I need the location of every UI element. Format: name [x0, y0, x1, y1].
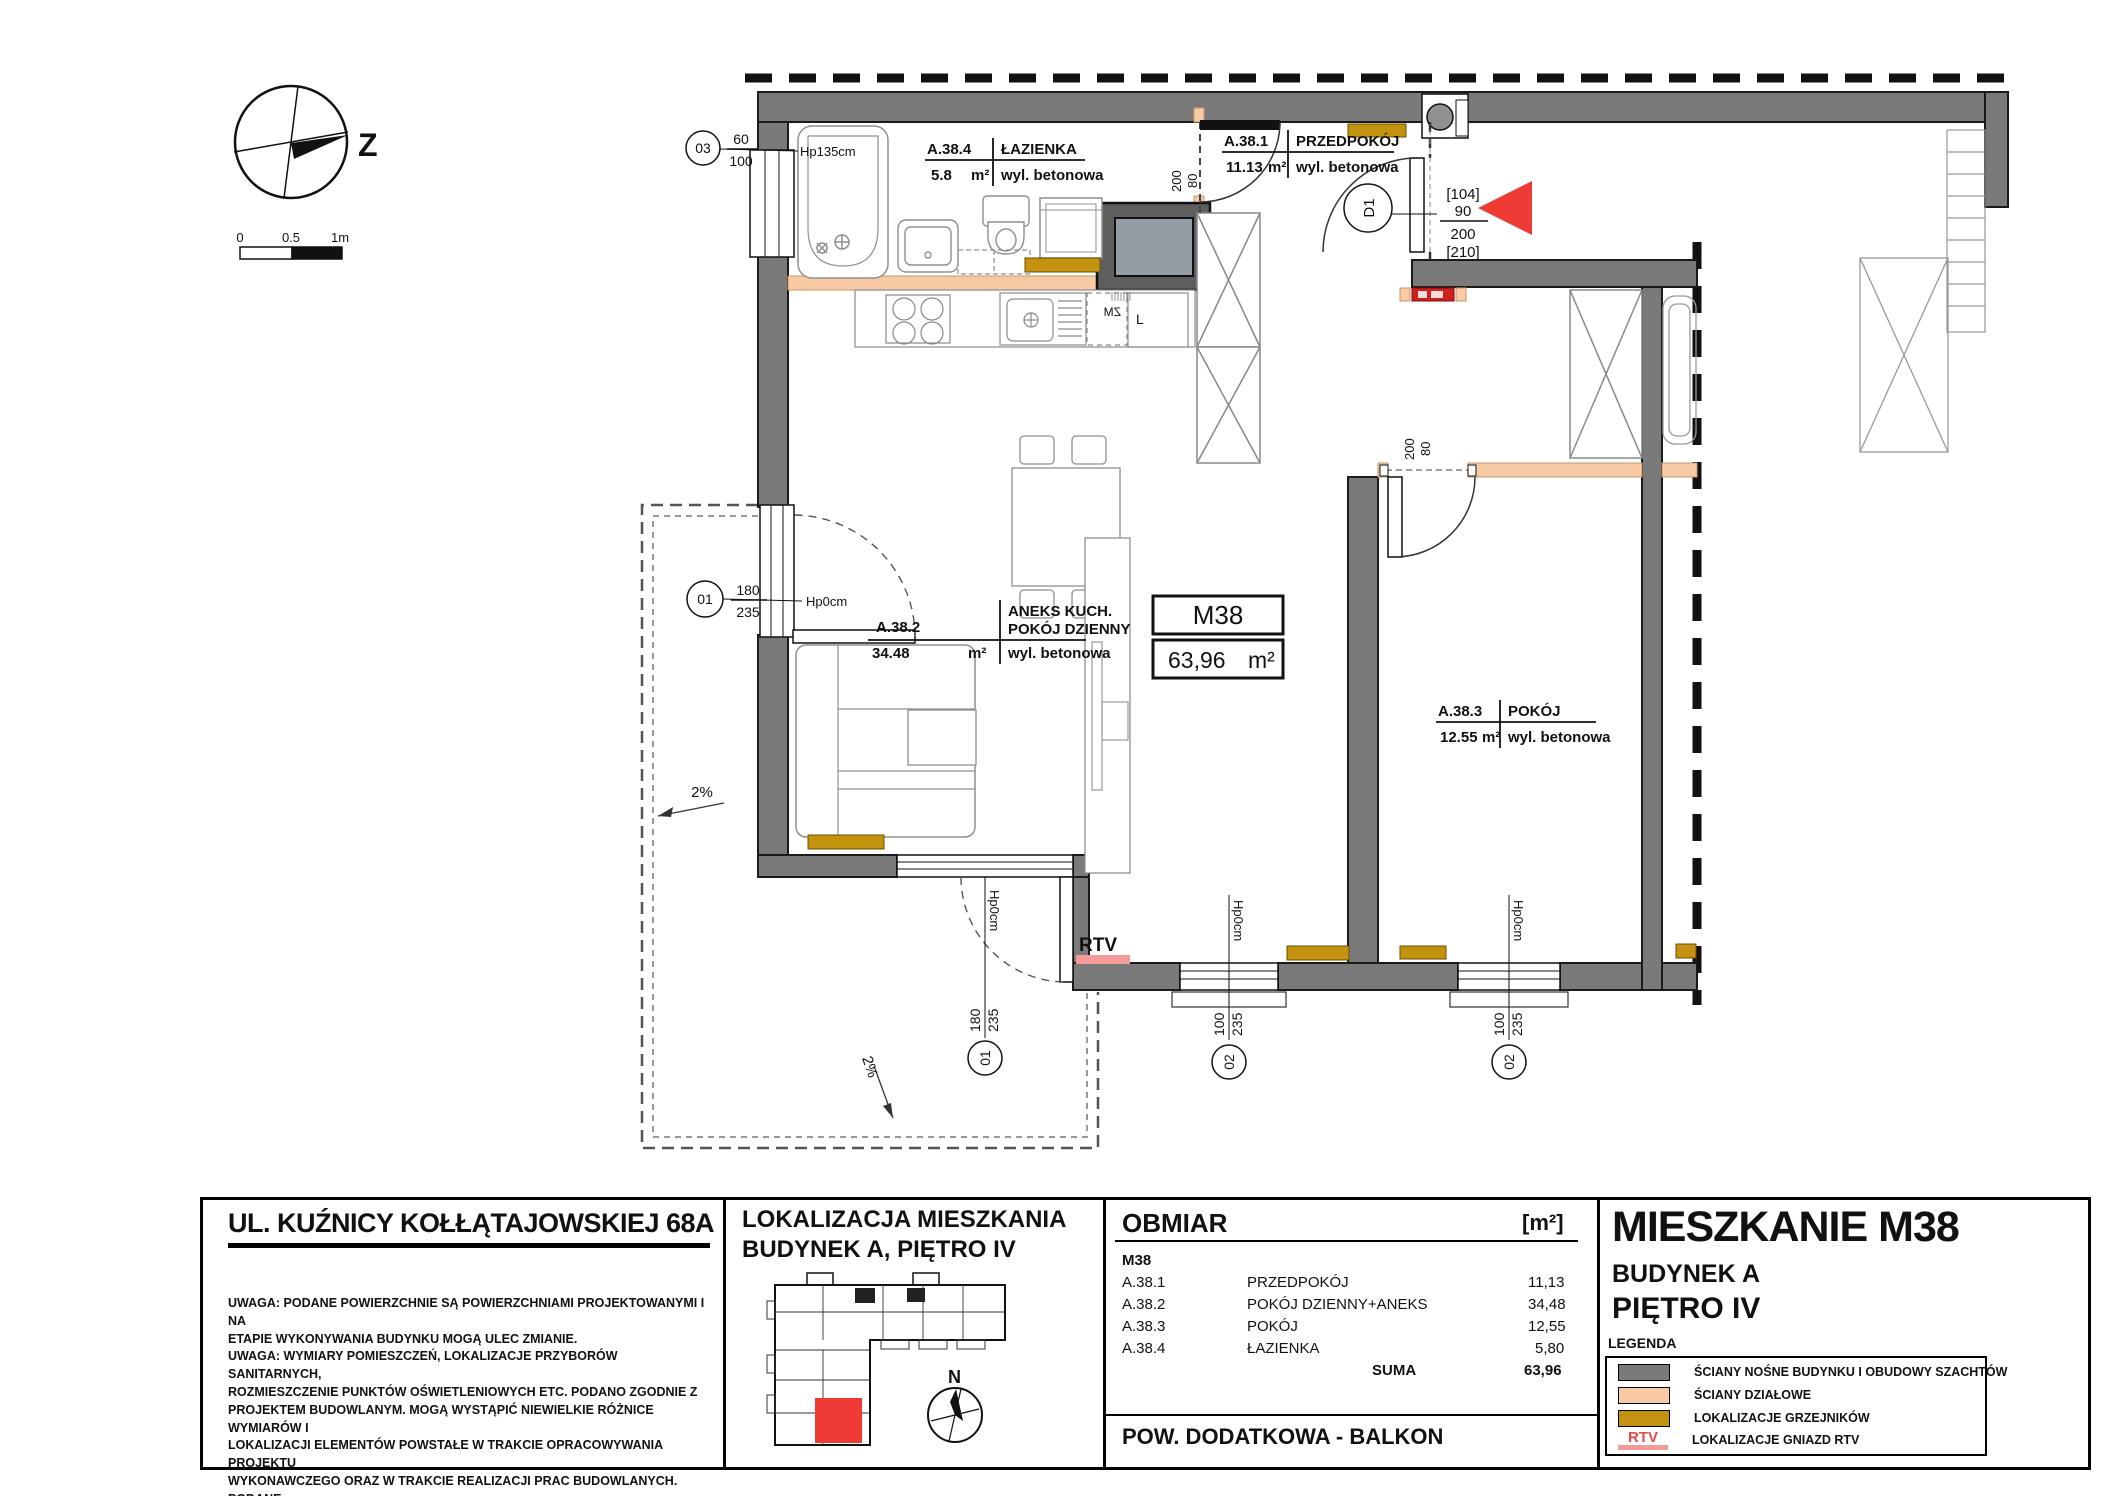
svg-text:m²: m²	[1482, 729, 1500, 746]
neighbor-shaft-icon	[1860, 258, 1948, 452]
svg-text:235: 235	[985, 1008, 1001, 1032]
svg-text:200: 200	[1169, 170, 1184, 192]
obmiar-bottom-line	[1103, 1414, 1597, 1416]
svg-text:ŁAZIENKA: ŁAZIENKA	[1001, 141, 1077, 158]
highlighted-apartment	[815, 1398, 862, 1443]
building-label: BUDYNEK	[1612, 1260, 1736, 1289]
svg-text:m²: m²	[968, 645, 986, 662]
rtv-socket: RTV	[1076, 935, 1130, 964]
row-name: ŁAZIENKA	[1247, 1340, 1477, 1357]
svg-text:200: 200	[1402, 438, 1417, 460]
room-label-bedroom: A.38.3 POKÓJ 12.55 m² wyl. betonowa	[1436, 700, 1611, 748]
svg-text:POKÓJ: POKÓJ	[1508, 702, 1561, 720]
floor-plan: ZM L	[0, 0, 2116, 1192]
legend-swatch-radiator	[1618, 1410, 1670, 1427]
wardrobe-icon	[1570, 290, 1642, 458]
note-line: UWAGA: WYMIARY POMIESZCZEŃ, LOKALIZACJE …	[228, 1348, 708, 1384]
svg-text:01: 01	[977, 1050, 993, 1066]
north-label: Z	[358, 127, 378, 163]
row-code: A.38.4	[1122, 1340, 1247, 1357]
sink-icon	[1000, 293, 1086, 345]
svg-text:02: 02	[1221, 1054, 1237, 1070]
neighbor-bathtub-icon	[1663, 296, 1696, 444]
stair-core	[855, 1288, 875, 1303]
svg-text:2%: 2%	[691, 784, 713, 801]
legend-row-rtv: RTV LOKALIZACJE GNIAZD RTV	[1618, 1430, 1859, 1450]
svg-text:5.8: 5.8	[931, 167, 952, 184]
svg-text:1m: 1m	[331, 230, 349, 245]
vent-comb-icon	[1112, 292, 1130, 301]
compass-icon: Z	[234, 86, 378, 198]
svg-text:235: 235	[1229, 1012, 1245, 1036]
svg-text:80: 80	[1185, 174, 1200, 188]
minimap-compass-icon: N	[928, 1367, 982, 1442]
tv-unit-icon	[1085, 538, 1130, 873]
location-minimap: N	[723, 1255, 1103, 1465]
svg-text:90: 90	[1455, 203, 1472, 220]
row-area: 11,13	[1528, 1274, 1564, 1291]
legend-rtv-tag: RTV	[1618, 1430, 1668, 1450]
legend-swatch-partition	[1618, 1387, 1670, 1404]
svg-text:Hp0cm: Hp0cm	[1511, 900, 1526, 941]
svg-text:03: 03	[695, 140, 711, 156]
svg-text:wyl. betonowa: wyl. betonowa	[1295, 159, 1399, 176]
location-title-1: LOKALIZACJA MIESZKANIA	[742, 1206, 1066, 1234]
row-name: POKÓJ	[1247, 1318, 1477, 1335]
svg-text:A.38.2: A.38.2	[876, 619, 920, 636]
bath-dashed-cabinet-icon	[958, 250, 1030, 274]
svg-text:RTV: RTV	[1079, 935, 1117, 956]
svg-text:235: 235	[736, 604, 760, 620]
address-underline	[228, 1243, 710, 1248]
footer-divider-3	[1597, 1197, 1600, 1467]
svg-text:A.38.3: A.38.3	[1438, 703, 1482, 720]
svg-text:wyl. betonowa: wyl. betonowa	[1000, 167, 1104, 184]
additional-area-label: POW. DODATKOWA - BALKON	[1122, 1424, 1443, 1450]
obmiar-apartment: M38	[1122, 1252, 1151, 1269]
svg-text:[210]: [210]	[1446, 244, 1479, 261]
svg-text:80: 80	[1418, 442, 1433, 456]
toilet-icon	[983, 196, 1029, 254]
shaft-x-icon	[1197, 213, 1260, 463]
room-door	[1380, 465, 1476, 557]
kitchen-counter	[855, 290, 1195, 347]
note-line: LOKALIZACJI ELEMENTÓW POWSTAŁE W TRAKCIE…	[228, 1437, 708, 1473]
dishwasher-label: ZM	[1104, 305, 1121, 319]
svg-text:A.38.4: A.38.4	[927, 141, 972, 158]
room-label-living: A.38.2 ANEKS KUCH. POKÓJ DZIENNY 34.48 m…	[868, 600, 1131, 664]
svg-text:m²: m²	[1248, 647, 1275, 673]
legend-label: ŚCIANY DZIAŁOWE	[1694, 1388, 1811, 1402]
obmiar-row: A.38.1PRZEDPOKÓJ	[1122, 1274, 1477, 1291]
svg-text:235: 235	[1509, 1012, 1525, 1036]
obmiar-sum-label: SUMA	[1372, 1362, 1416, 1379]
fridge-label: L	[1136, 311, 1144, 327]
scale-bar: 0 0.5 1m	[236, 230, 349, 259]
svg-text:ANEKS KUCH.: ANEKS KUCH.	[1008, 603, 1112, 620]
address-title: UL. KUŹNICY KOŁŁĄTAJOWSKIEJ 68A	[228, 1208, 714, 1239]
svg-text:34.48: 34.48	[872, 645, 910, 662]
obmiar-title: OBMIAR	[1122, 1208, 1227, 1239]
svg-text:0: 0	[236, 230, 243, 245]
svg-text:[104]: [104]	[1446, 186, 1479, 203]
minimap-north-label: N	[948, 1367, 961, 1387]
svg-text:m²: m²	[1268, 159, 1286, 176]
svg-text:Hp0cm: Hp0cm	[806, 594, 847, 609]
obmiar-row: A.38.4ŁAZIENKA	[1122, 1340, 1477, 1357]
slope-annotation-2: 2%	[858, 1054, 893, 1118]
room-door-label: 200 80	[1402, 438, 1433, 460]
legend-title: LEGENDA	[1608, 1335, 1676, 1351]
svg-text:180: 180	[967, 1008, 983, 1032]
svg-text:PRZEDPOKÓJ: PRZEDPOKÓJ	[1296, 132, 1399, 150]
svg-text:180: 180	[736, 582, 760, 598]
entrance-arrow-icon	[1478, 181, 1532, 235]
svg-text:100: 100	[729, 153, 753, 169]
row-area: 12,55	[1528, 1318, 1566, 1335]
red-tag	[1412, 288, 1454, 301]
row-name: POKÓJ DZIENNY+ANEKS	[1247, 1296, 1477, 1313]
stairs-icon	[1947, 130, 1985, 332]
svg-text:Hp0cm: Hp0cm	[1231, 900, 1246, 941]
row-code: A.38.2	[1122, 1296, 1247, 1313]
svg-text:63,96: 63,96	[1168, 647, 1226, 673]
obmiar-row: A.38.3POKÓJ	[1122, 1318, 1477, 1335]
note-line: WYKONAWCZEGO ORAZ W TRAKCIE REALIZACJI P…	[228, 1473, 708, 1496]
floor-label: PIĘTRO IV	[1612, 1292, 1760, 1326]
svg-text:Hp0cm: Hp0cm	[987, 890, 1002, 931]
svg-text:01: 01	[697, 591, 713, 607]
note-line: ETAPIE WYKONYWANIA BUDYNKU MOGĄ ULEC ZMI…	[228, 1331, 708, 1349]
footer-divider-2	[1103, 1197, 1106, 1467]
svg-text:60: 60	[733, 131, 749, 147]
room-label-bathroom: A.38.4 ŁAZIENKA 5.8 m² wyl. betonowa	[925, 138, 1104, 186]
opening-label-01-bottom: Hp0cm 180 235 01	[967, 877, 1002, 1075]
row-code: A.38.1	[1122, 1274, 1247, 1291]
svg-text:12.55: 12.55	[1440, 729, 1478, 746]
svg-text:D1: D1	[1361, 198, 1378, 217]
legend-label: LOKALIZACJE GNIAZD RTV	[1692, 1433, 1859, 1447]
svg-text:100: 100	[1491, 1012, 1507, 1036]
window-03	[750, 150, 794, 257]
washing-machine-icon	[1040, 198, 1102, 258]
stove-icon	[886, 295, 950, 344]
svg-text:100: 100	[1211, 1012, 1227, 1036]
svg-text:wyl. betonowa: wyl. betonowa	[1007, 645, 1111, 662]
note-line: PROJEKTEM BUDOWLANYM. MOGĄ WYSTĄPIĆ NIEW…	[228, 1402, 708, 1438]
row-area: 34,48	[1528, 1296, 1566, 1313]
obmiar-row: A.38.2POKÓJ DZIENNY+ANEKS	[1122, 1296, 1477, 1313]
notes-text: UWAGA: PODANE POWIERZCHNIE SĄ POWIERZCHN…	[228, 1295, 708, 1496]
apartment-id-box: M38 63,96 m²	[1153, 596, 1283, 678]
shaft-enclosure-icon	[1097, 203, 1210, 290]
note-line: UWAGA: PODANE POWIERZCHNIE SĄ POWIERZCHN…	[228, 1295, 708, 1331]
bathroom-door-label: 200 80	[1169, 170, 1200, 192]
legend-row-partitions: ŚCIANY DZIAŁOWE	[1618, 1385, 1811, 1405]
floor-plan-sheet: ZM L	[0, 0, 2116, 1496]
svg-text:M38: M38	[1193, 600, 1244, 630]
sheet-title: MIESZKANIE M38	[1612, 1203, 1959, 1252]
row-code: A.38.3	[1122, 1318, 1247, 1335]
legend-label: ŚCIANY NOŚNE BUDYNKU I OBUDOWY SZACHTÓW	[1694, 1365, 2007, 1379]
obmiar-sum-value: 63,96	[1524, 1362, 1562, 1379]
stair-core	[907, 1288, 925, 1302]
washbasin-icon	[898, 220, 958, 272]
legend-label: LOKALIZACJE GRZEJNIKÓW	[1694, 1411, 1870, 1425]
svg-text:A.38.1: A.38.1	[1224, 133, 1268, 150]
room-label-hall: A.38.1 PRZEDPOKÓJ 11.13 m² wyl. betonowa	[1222, 130, 1399, 178]
row-area: 5,80	[1535, 1340, 1564, 1357]
slope-annotation-1: 2%	[658, 784, 724, 817]
svg-text:Hp135cm: Hp135cm	[800, 144, 856, 159]
svg-text:11.13: 11.13	[1226, 159, 1263, 176]
svg-text:0.5: 0.5	[282, 230, 300, 245]
obmiar-header-line	[1115, 1240, 1578, 1242]
coffee-table-icon	[908, 710, 976, 765]
svg-text:POKÓJ DZIENNY: POKÓJ DZIENNY	[1008, 620, 1131, 638]
svg-text:wyl. betonowa: wyl. betonowa	[1507, 729, 1611, 746]
legend-swatch-load-bearing	[1618, 1364, 1670, 1381]
note-line: ROZMIESZCZENIE PUNKTÓW OŚWIETLENIOWYCH E…	[228, 1384, 708, 1402]
svg-text:200: 200	[1450, 226, 1475, 243]
legend-row-walls: ŚCIANY NOŚNE BUDYNKU I OBUDOWY SZACHTÓW	[1618, 1362, 2007, 1382]
building-value: A	[1742, 1260, 1760, 1289]
svg-text:m²: m²	[971, 167, 989, 184]
row-name: PRZEDPOKÓJ	[1247, 1274, 1477, 1291]
obmiar-unit-header: [m²]	[1522, 1210, 1564, 1236]
legend-row-radiators: LOKALIZACJE GRZEJNIKÓW	[1618, 1408, 1870, 1428]
svg-text:02: 02	[1501, 1054, 1517, 1070]
